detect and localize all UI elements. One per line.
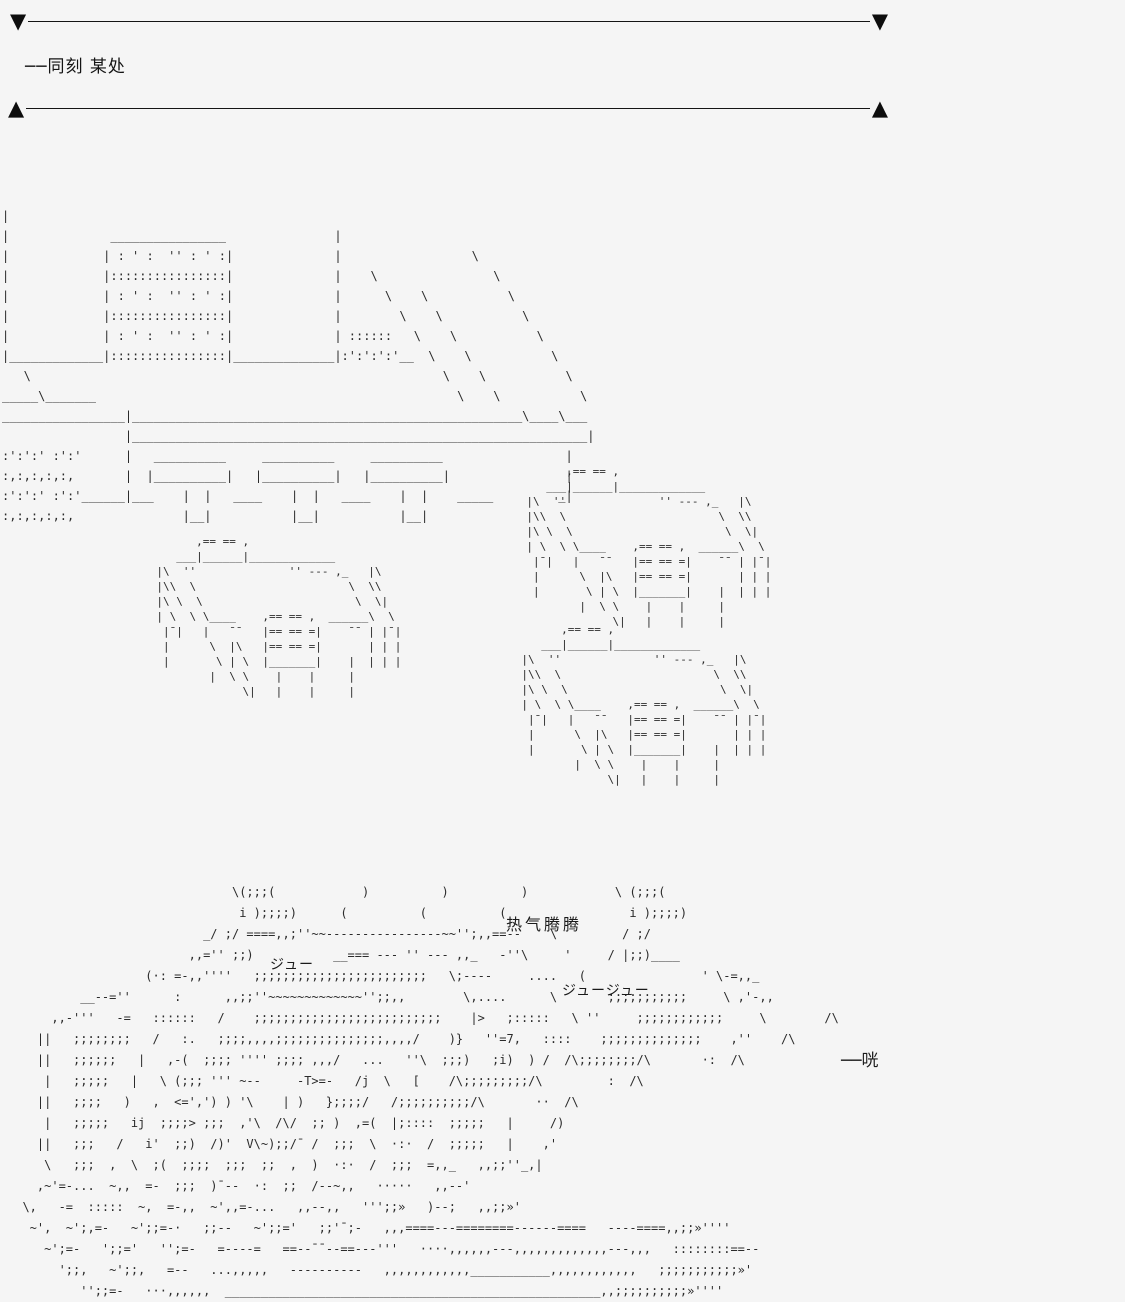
sizzle-label-left: ジュー (270, 954, 314, 974)
triangle-up-icon: ▲ (872, 95, 888, 121)
table-ascii-art-top-right: ,== == , ___|______|_____________ |\ '' … (480, 464, 771, 629)
table-ascii-art-bottom-right: ,== == , ___|______|_____________ |\ '' … (475, 622, 766, 787)
aa-story-page: { "divider": { "down_marker": "▼", "up_m… (0, 0, 1125, 1300)
scene-divider-bottom: ▲ ▲ (8, 95, 888, 121)
steam-label: 热气腾腾 (506, 911, 582, 935)
triangle-up-icon: ▲ (8, 95, 24, 121)
sizzle-label-right: ジュージュー (562, 980, 650, 1000)
scene-caption: ──同刻 某处 (25, 52, 126, 77)
scene-divider-top: ▼ ▼ (10, 8, 888, 34)
triangle-down-icon: ▼ (10, 8, 26, 34)
divider-rule (26, 108, 870, 109)
table-ascii-art-left: ,== == , ___|______|_____________ |\ '' … (110, 534, 401, 699)
divider-rule (28, 21, 870, 22)
triangle-down-icon: ▼ (872, 8, 888, 34)
clang-sfx-label: ──咣 (841, 1046, 878, 1071)
food-pile-ascii-art: \(;;;( ) ) ) \ (;;;( i );;;;) ( ( ( i );… (8, 882, 839, 1302)
